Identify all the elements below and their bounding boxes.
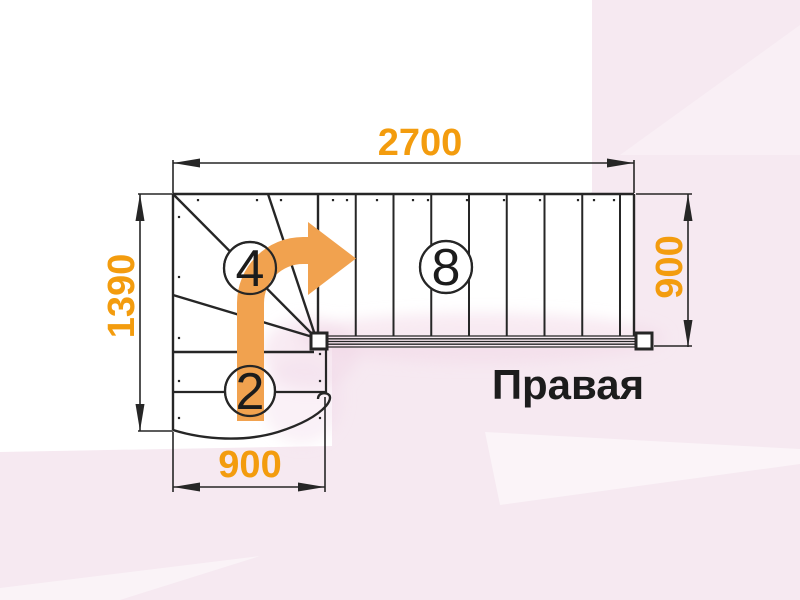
screw-dot [539, 199, 541, 201]
stair-plan-svg: 2700 1390 900 900 4 8 2 [0, 0, 800, 600]
screw-dot [593, 199, 595, 201]
screw-dot [197, 199, 199, 201]
newel-post-right [636, 333, 652, 349]
upper-flight-steps-count: 8 [432, 239, 461, 297]
dim-top-label: 2700 [378, 122, 463, 164]
orientation-label: Правая [492, 361, 644, 408]
screw-dot [346, 199, 348, 201]
screw-dot [178, 417, 180, 419]
newel-post-left [311, 333, 327, 349]
screw-dot [280, 199, 282, 201]
screw-dot [178, 337, 180, 339]
screw-dot [178, 380, 180, 382]
screw-dot [178, 276, 180, 278]
screw-dot [466, 199, 468, 201]
screw-dot [319, 353, 321, 355]
screw-dot [412, 199, 414, 201]
dim-right-label: 900 [649, 235, 691, 298]
screw-dot [577, 199, 579, 201]
screw-dot [256, 199, 258, 201]
screw-dot [178, 216, 180, 218]
screw-dot [503, 199, 505, 201]
dim-bottom-label: 900 [218, 444, 281, 486]
dim-left-label: 1390 [101, 254, 143, 339]
screw-dot [319, 417, 321, 419]
winder-steps-count: 4 [236, 240, 265, 298]
screw-dot [376, 199, 378, 201]
screw-dot [319, 380, 321, 382]
lower-flight-steps-count: 2 [236, 363, 265, 421]
stair-plan-diagram: 2700 1390 900 900 4 8 2 [0, 0, 800, 600]
screw-dot [332, 199, 334, 201]
screw-dot [427, 199, 429, 201]
screw-dot [613, 199, 615, 201]
